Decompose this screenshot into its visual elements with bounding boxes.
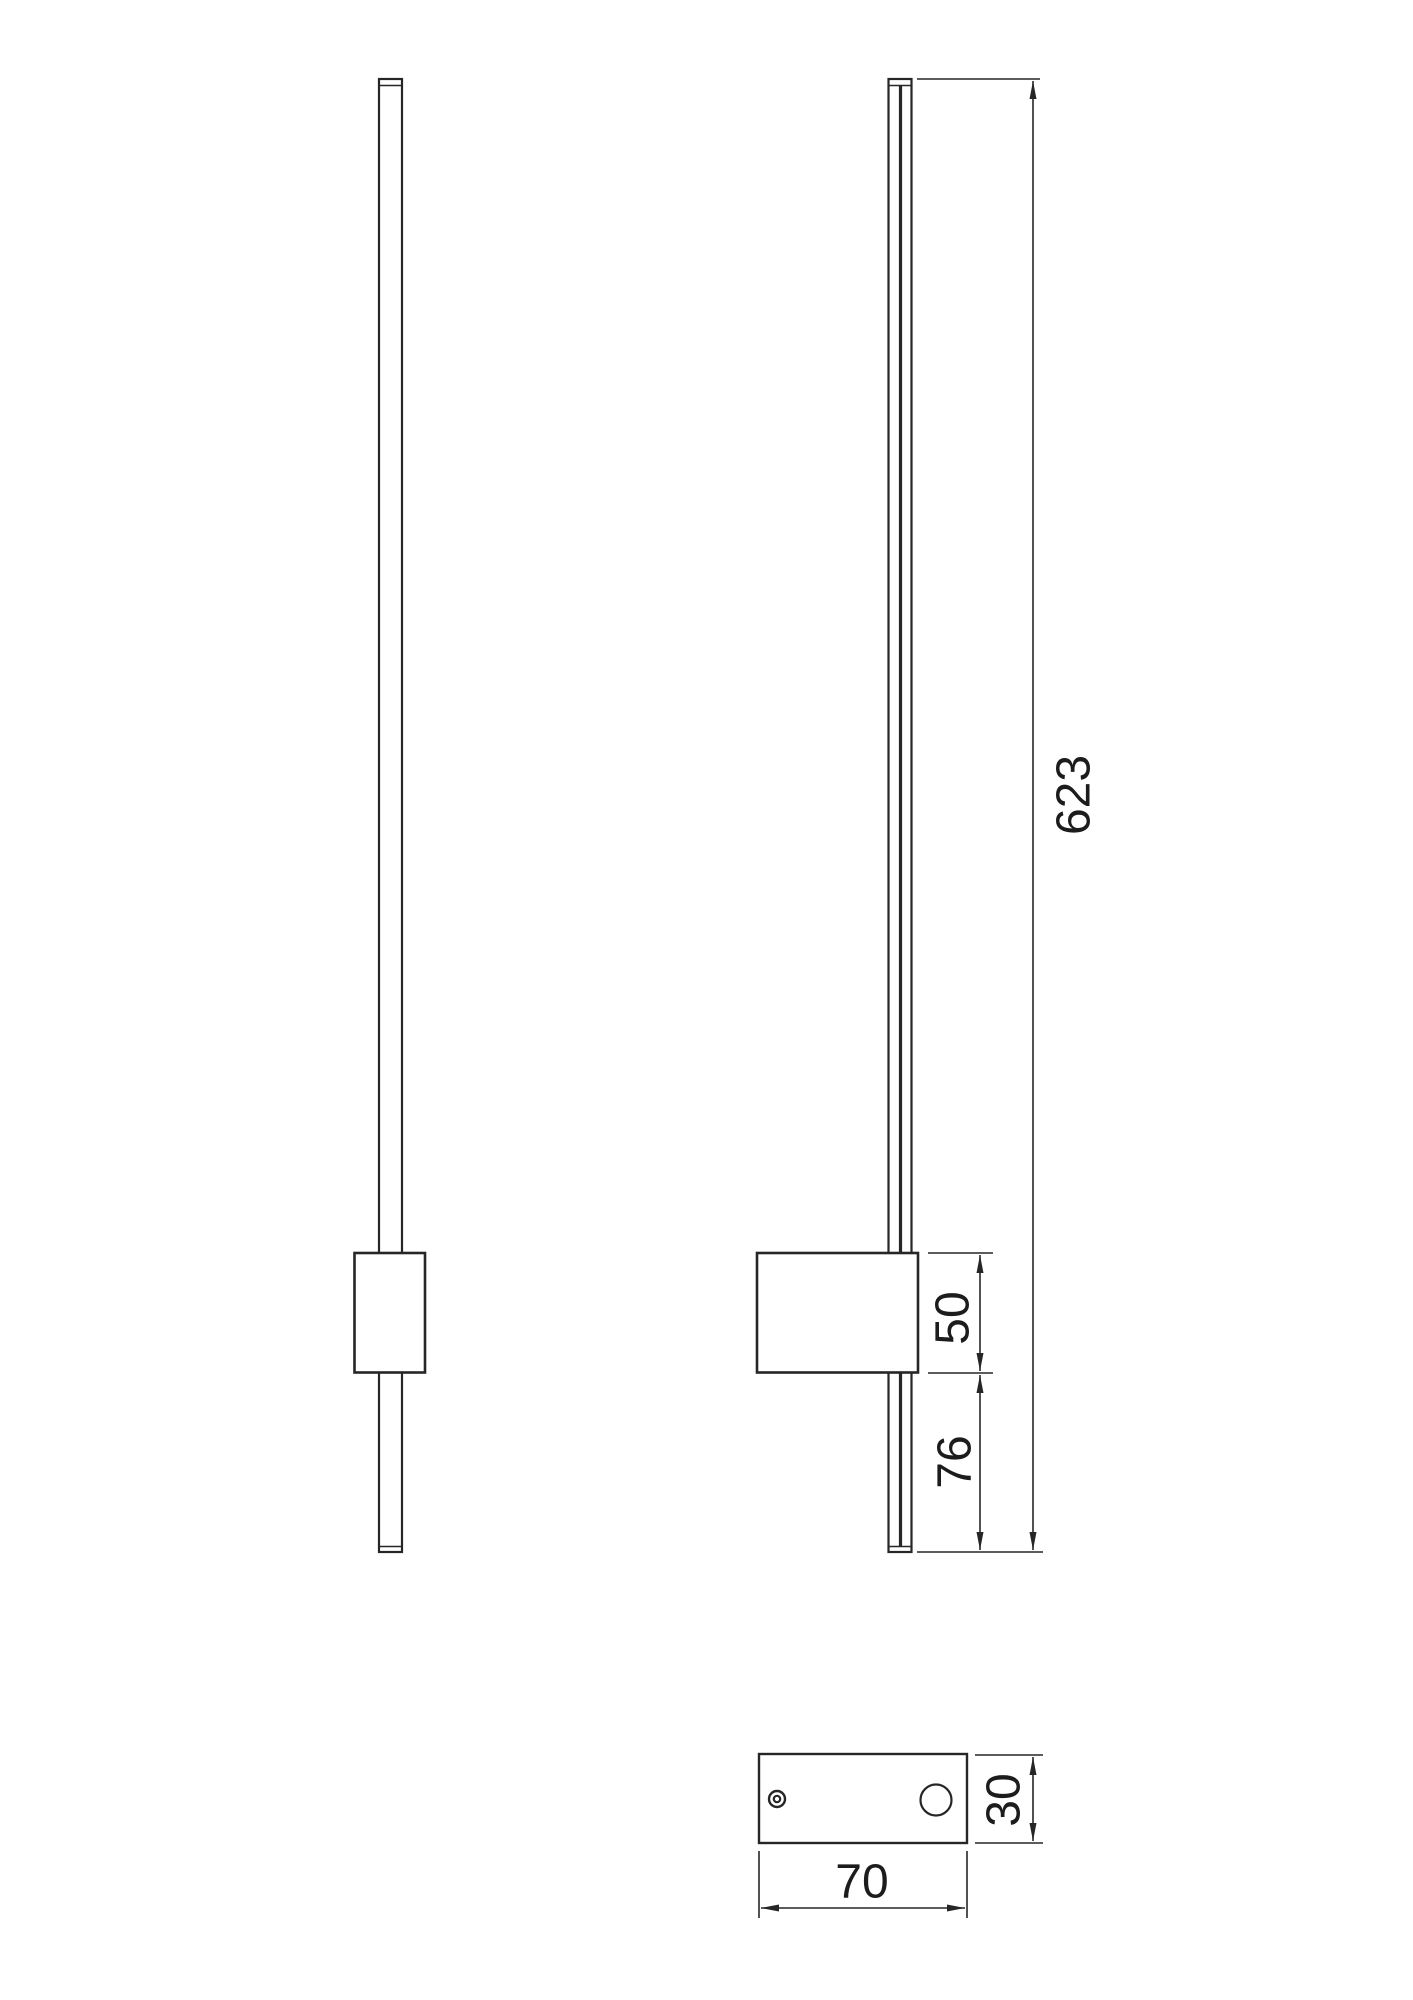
dimension-label-50: 50 — [927, 1291, 980, 1344]
technical-drawing-canvas: 623 50 76 30 — [0, 0, 1413, 2000]
dimension-label-76: 76 — [929, 1435, 982, 1488]
dimension-plate-width: 70 — [759, 1851, 967, 1918]
mounting-plate — [759, 1754, 967, 1843]
front-driver-box — [355, 1253, 426, 1373]
drawing-sheet: 623 50 76 30 — [0, 0, 1413, 2000]
dimension-label-30: 30 — [978, 1773, 1031, 1826]
front-view — [355, 79, 426, 1552]
dimension-plate-depth: 30 — [975, 1755, 1043, 1843]
dimension-label-70: 70 — [835, 1856, 888, 1909]
side-driver-box — [757, 1253, 918, 1373]
bottom-view — [759, 1754, 967, 1843]
dimension-lower-section: 76 — [929, 1375, 982, 1550]
side-view — [757, 79, 918, 1552]
dimension-label-623: 623 — [1048, 755, 1101, 835]
dimension-driver-box-height: 50 — [927, 1253, 994, 1373]
